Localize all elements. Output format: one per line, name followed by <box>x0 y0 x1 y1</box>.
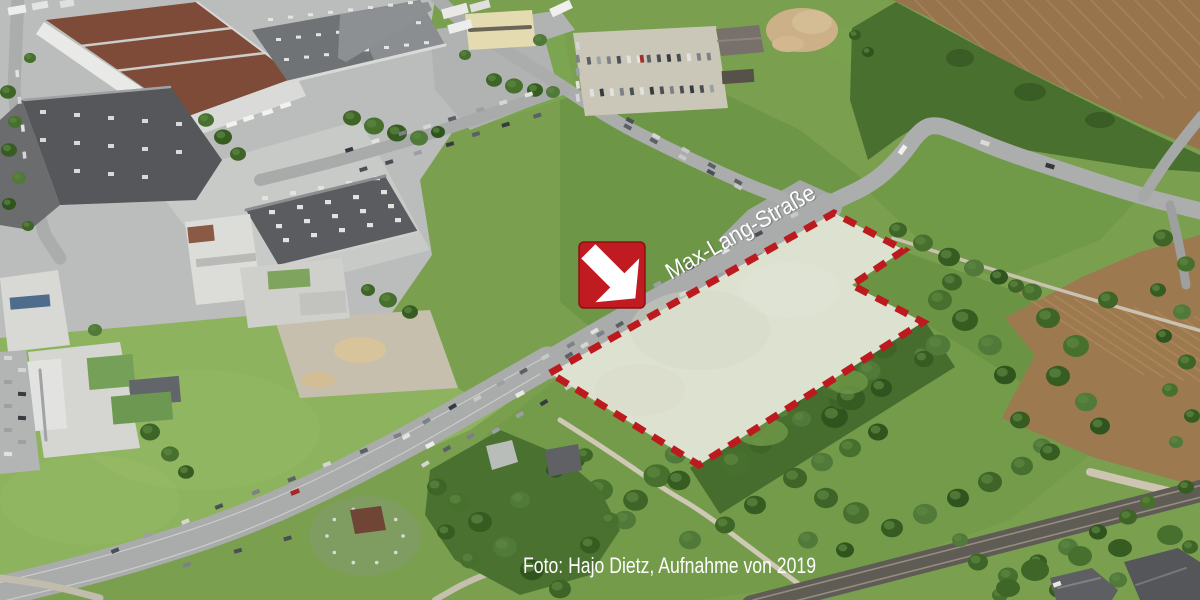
svg-text:Foto: Hajo Dietz, Aufnahme von: Foto: Hajo Dietz, Aufnahme von 2019 <box>523 553 816 578</box>
